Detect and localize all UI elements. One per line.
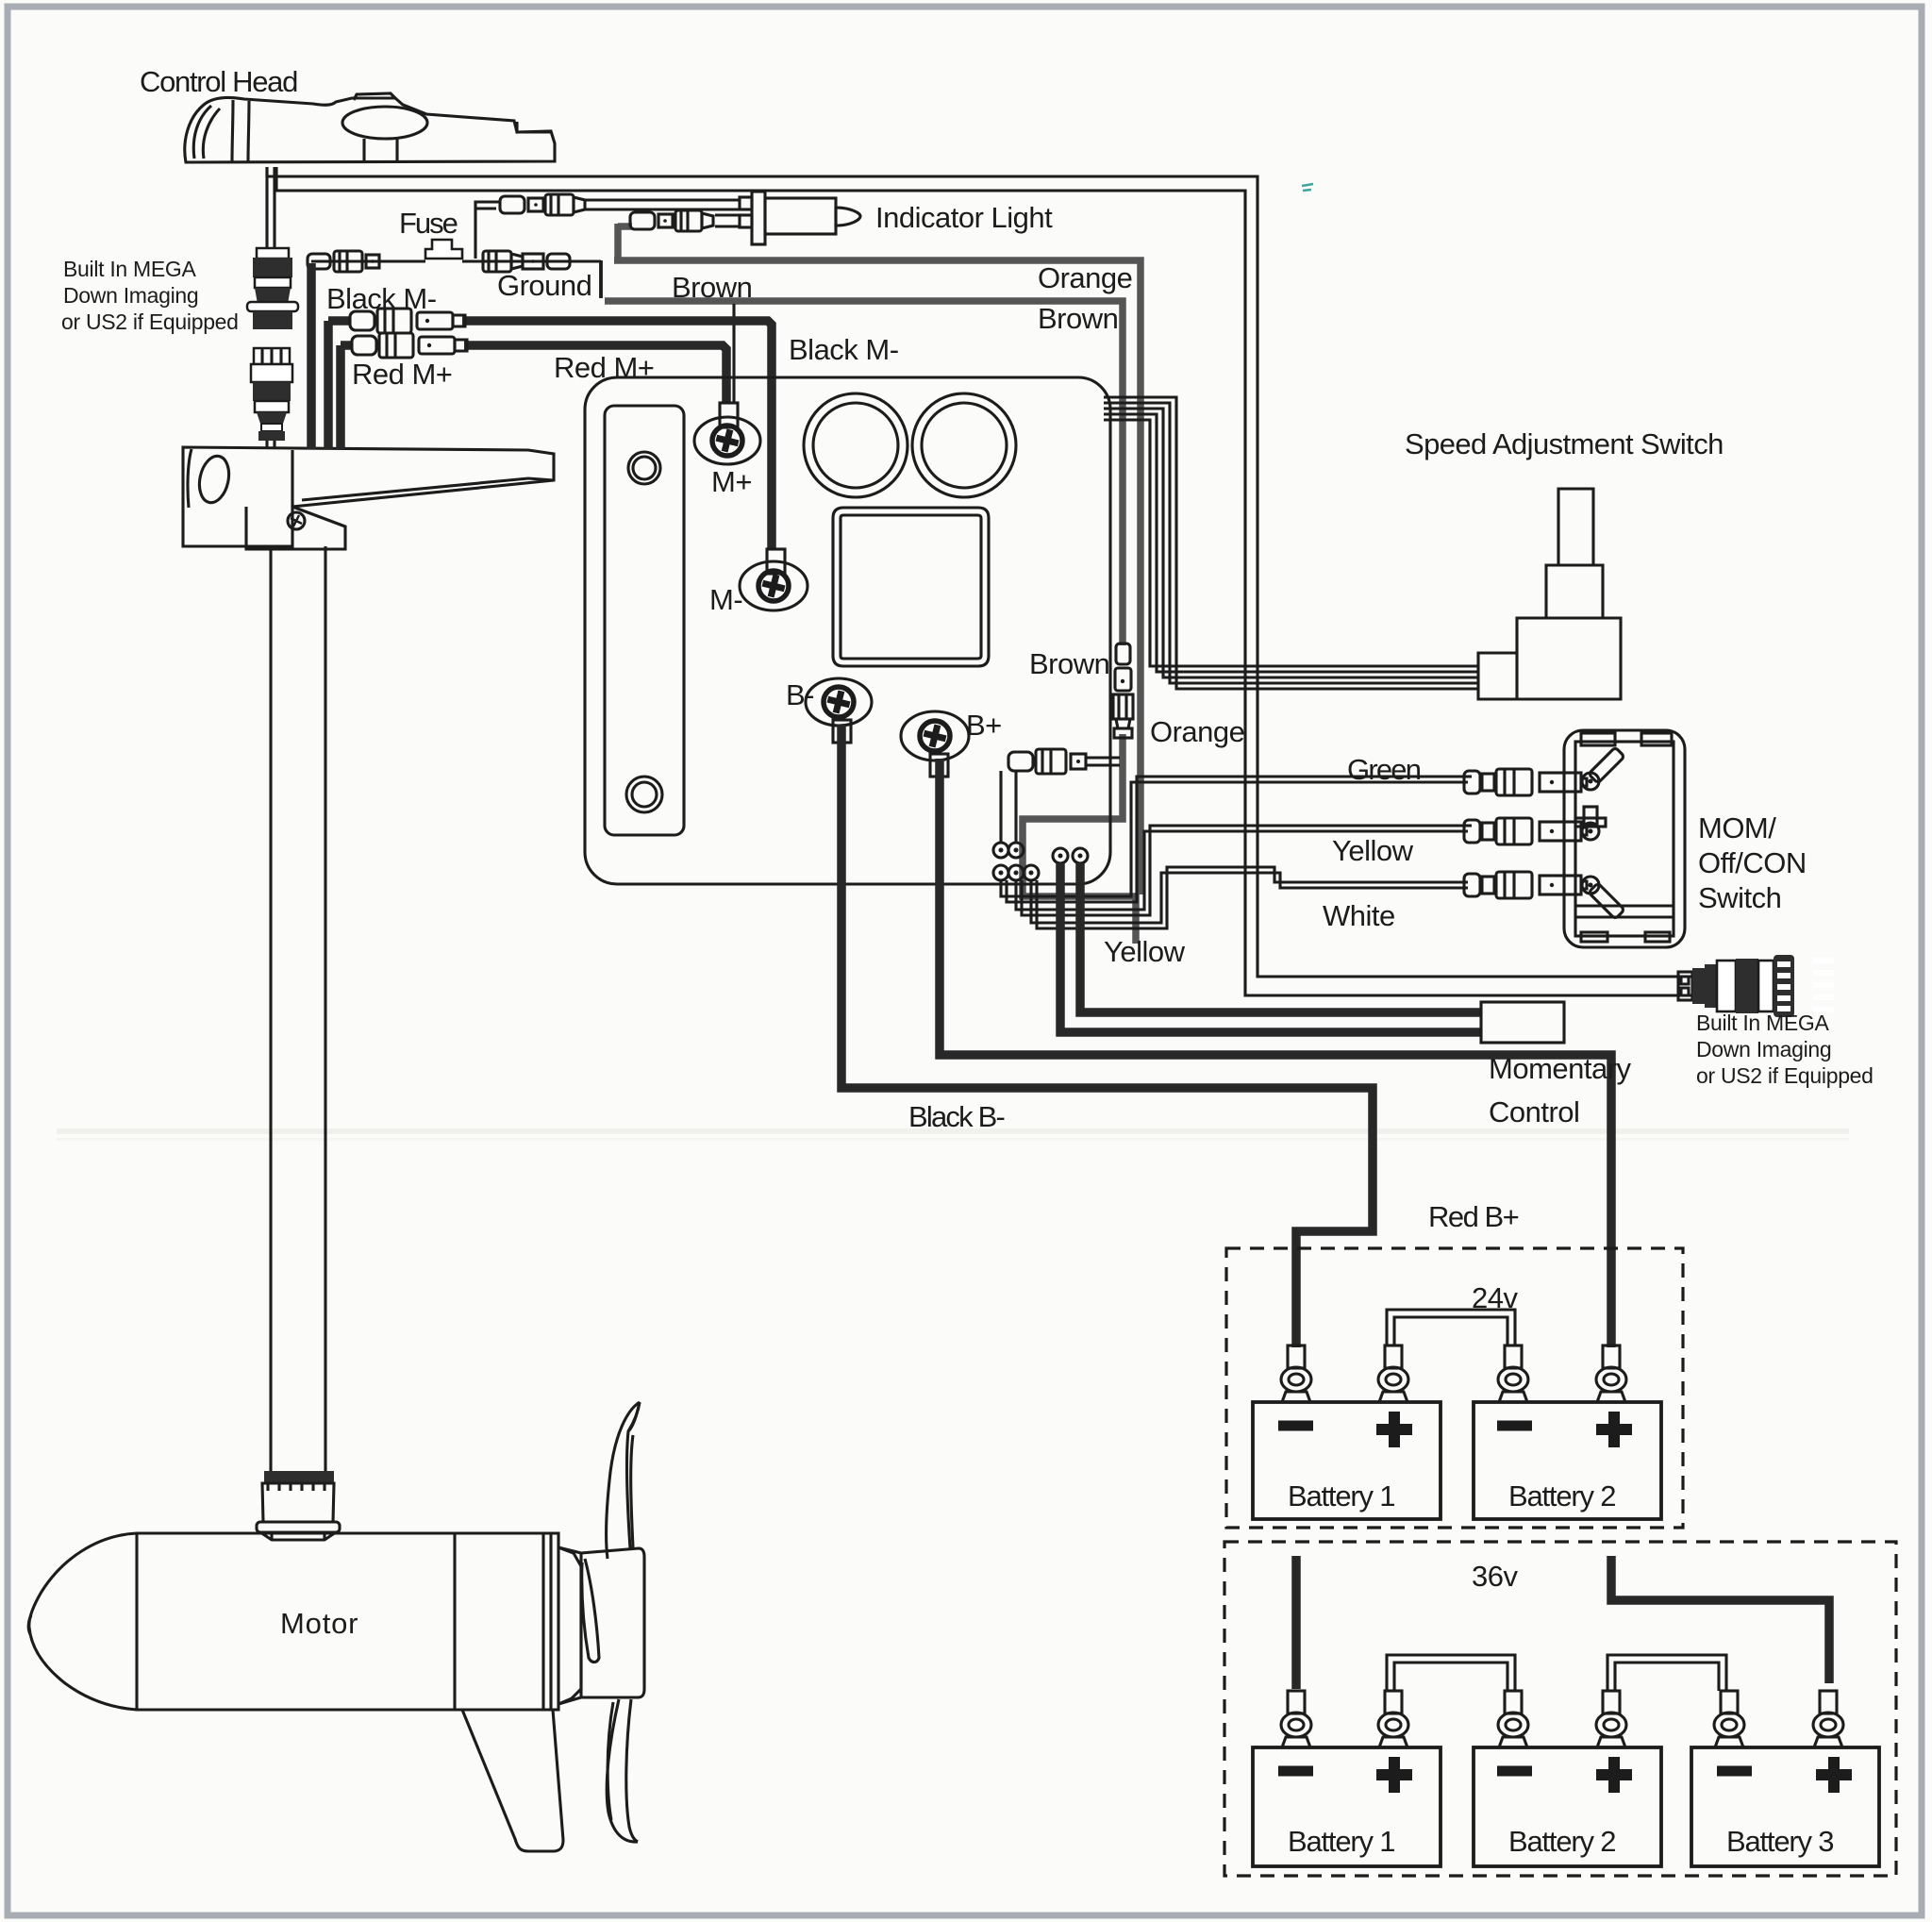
svg-text:Yellow: Yellow: [1104, 935, 1186, 968]
svg-text:Indicator Light: Indicator Light: [875, 201, 1053, 234]
svg-text:Switch: Switch: [1698, 881, 1781, 914]
svg-text:Control Head: Control Head: [140, 65, 297, 98]
svg-text:or US2 if Equipped: or US2 if Equipped: [1696, 1063, 1874, 1088]
svg-text:Built In MEGA: Built In MEGA: [1696, 1011, 1829, 1035]
svg-text:Off/CON: Off/CON: [1698, 846, 1807, 879]
svg-text:24v: 24v: [1472, 1281, 1518, 1314]
svg-text:Orange: Orange: [1038, 261, 1132, 294]
svg-text:Fuse: Fuse: [399, 207, 458, 240]
svg-text:Battery 3: Battery 3: [1726, 1825, 1833, 1858]
svg-text:Battery 1: Battery 1: [1288, 1825, 1394, 1858]
svg-text:Red M+: Red M+: [554, 351, 654, 384]
svg-text:Brown: Brown: [672, 271, 752, 304]
svg-text:Battery 2: Battery 2: [1508, 1825, 1615, 1858]
svg-text:Motor: Motor: [280, 1607, 358, 1640]
svg-text:M+: M+: [711, 465, 752, 498]
svg-text:Yellow: Yellow: [1332, 834, 1414, 867]
svg-text:36v: 36v: [1472, 1560, 1518, 1593]
svg-text:MOM/: MOM/: [1698, 811, 1776, 844]
svg-text:Brown: Brown: [1029, 647, 1109, 680]
svg-text:Battery 2: Battery 2: [1508, 1479, 1615, 1513]
svg-text:Green: Green: [1347, 753, 1421, 786]
svg-text:Black B-: Black B-: [908, 1100, 1004, 1133]
svg-text:Momentary: Momentary: [1489, 1052, 1632, 1085]
svg-text:Red M+: Red M+: [352, 358, 452, 391]
svg-text:Ground: Ground: [497, 269, 591, 302]
svg-text:Orange: Orange: [1150, 715, 1244, 748]
svg-text:Battery 1: Battery 1: [1288, 1479, 1394, 1513]
svg-text:Brown: Brown: [1038, 302, 1118, 335]
svg-text:Speed Adjustment Switch: Speed Adjustment Switch: [1405, 427, 1724, 460]
svg-text:Red B+: Red B+: [1428, 1200, 1519, 1233]
svg-text:Black M-: Black M-: [789, 333, 899, 366]
svg-text:White: White: [1323, 899, 1395, 932]
svg-text:Down Imaging: Down Imaging: [63, 283, 198, 308]
svg-text:Built In MEGA: Built In MEGA: [63, 257, 196, 281]
svg-text:Control: Control: [1489, 1095, 1579, 1128]
svg-text:Down Imaging: Down Imaging: [1696, 1037, 1831, 1061]
svg-text:or US2 if Equipped: or US2 if Equipped: [61, 309, 239, 334]
svg-text:B+: B+: [966, 709, 1002, 742]
svg-text:M-: M-: [709, 583, 742, 616]
svg-text:B-: B-: [786, 678, 814, 711]
svg-text:Black M-: Black M-: [326, 282, 437, 315]
